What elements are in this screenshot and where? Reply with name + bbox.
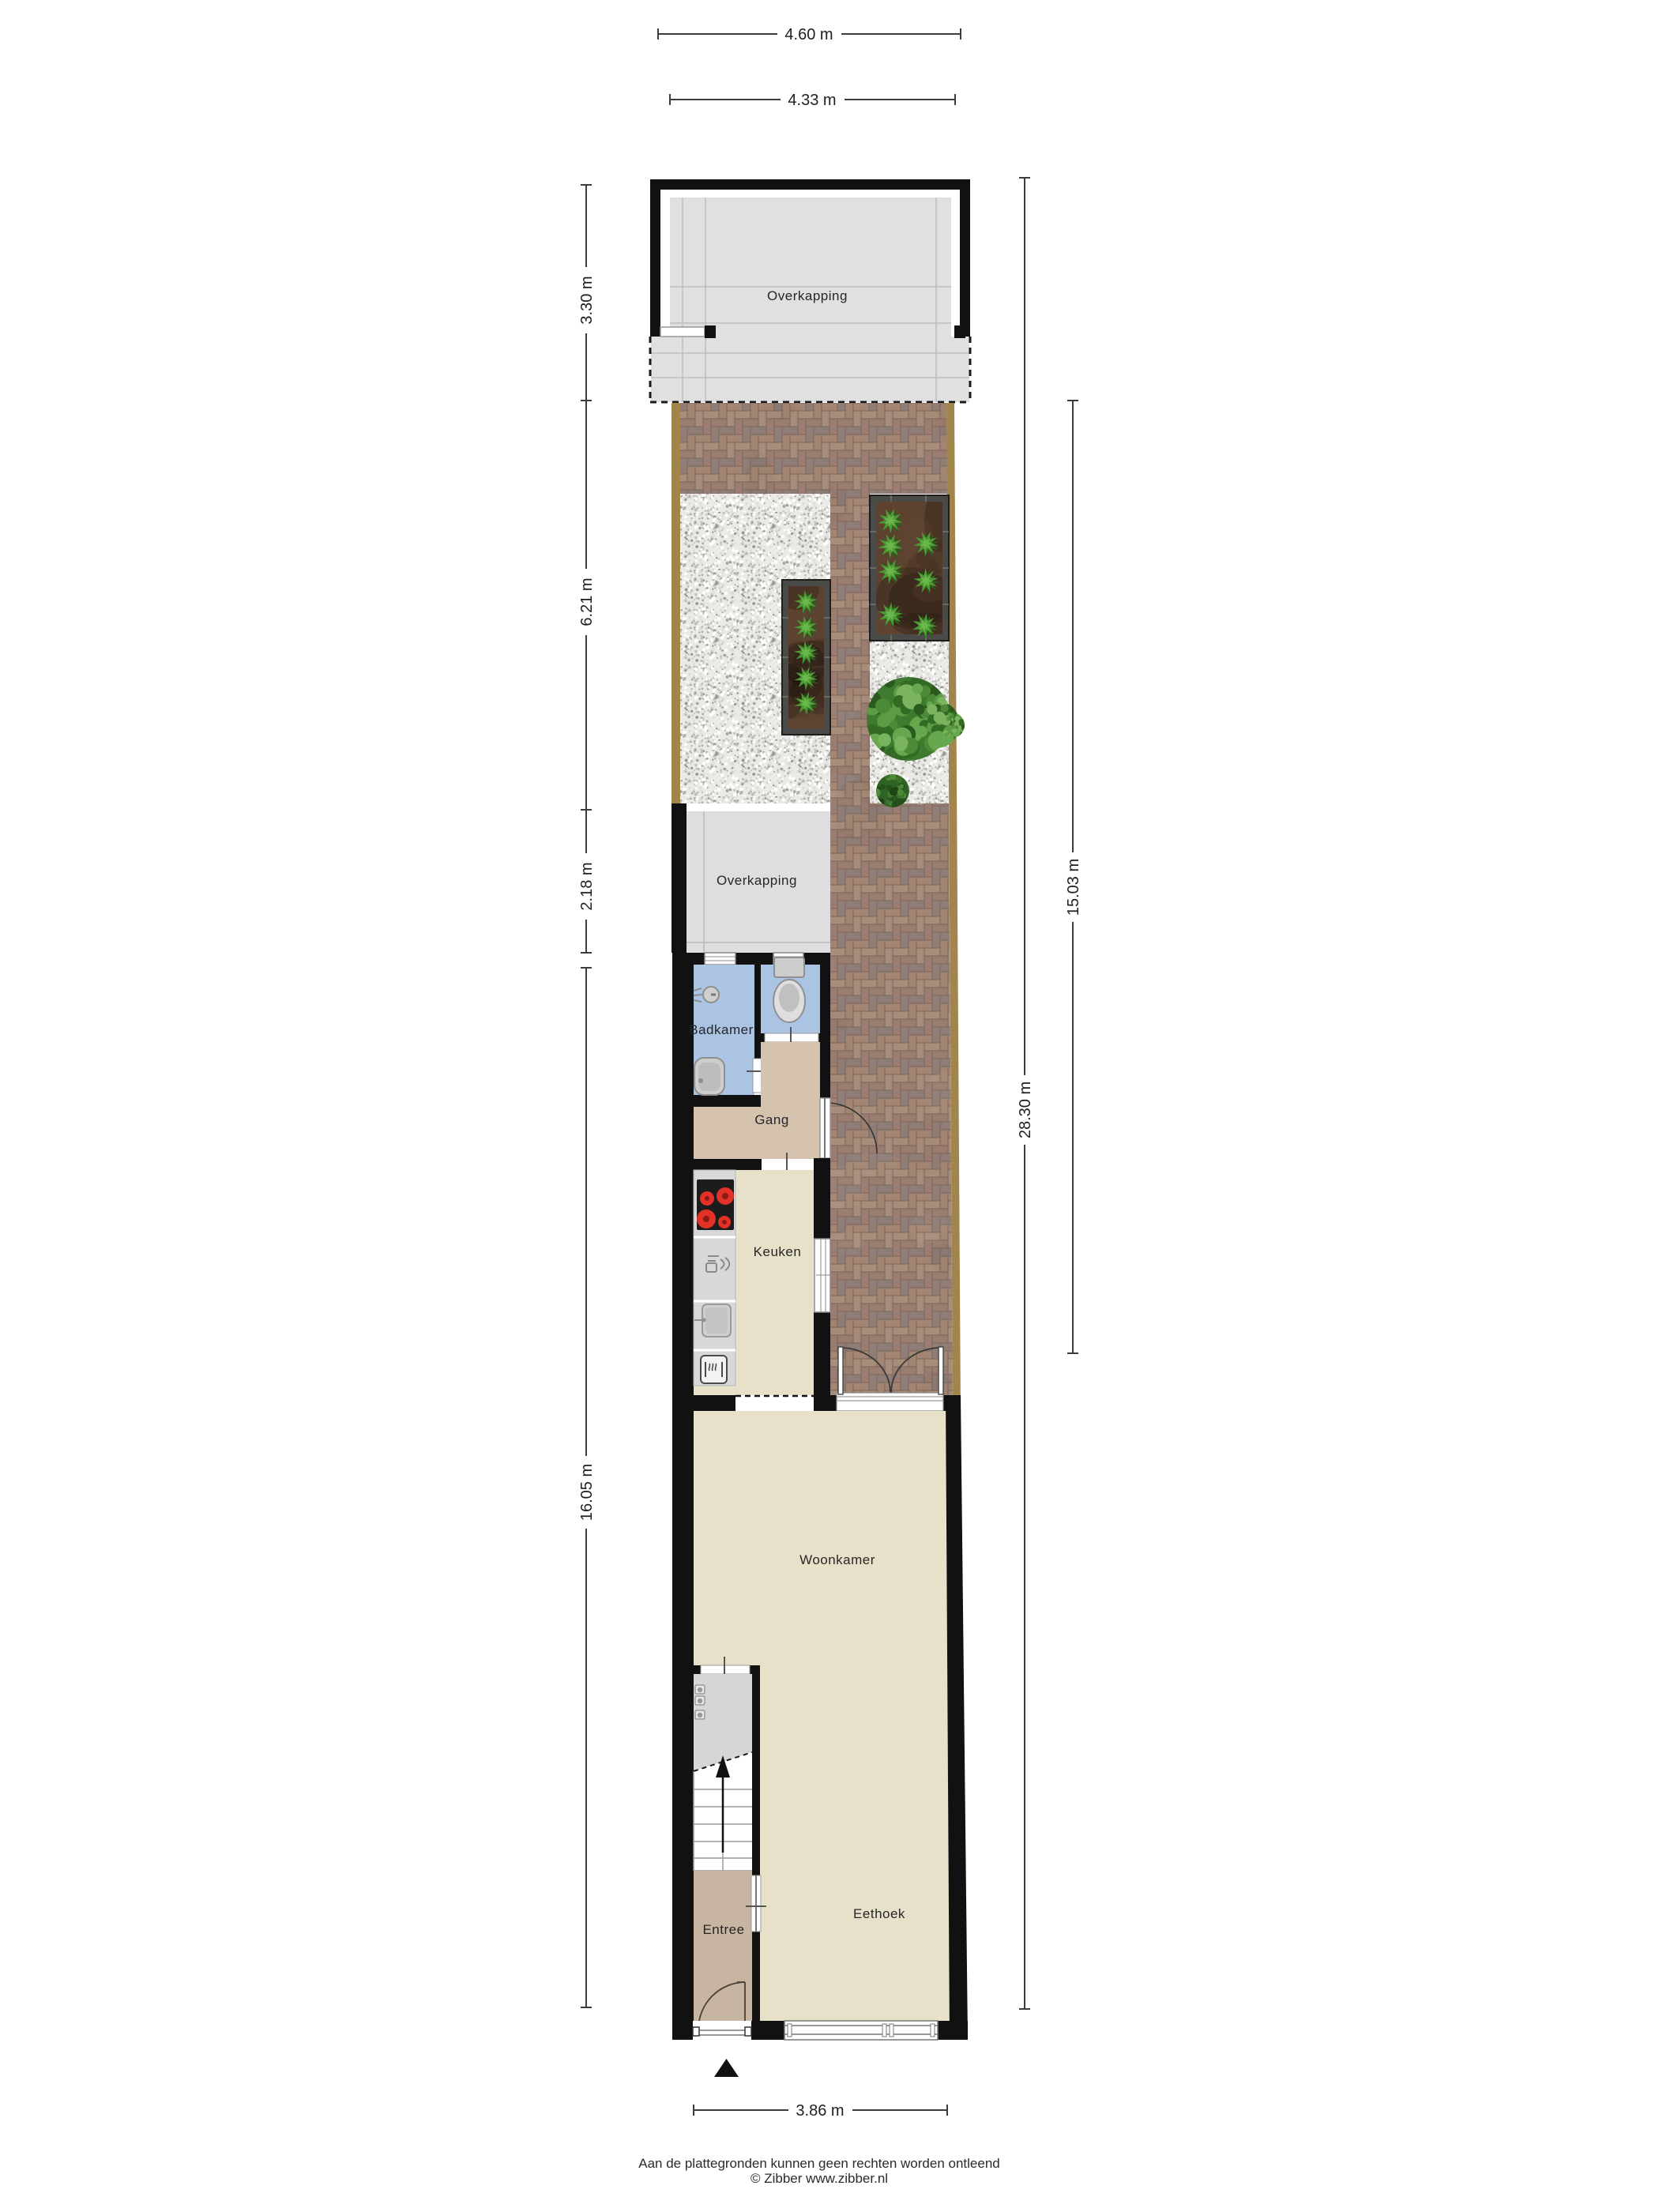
svg-text:Badkamer: Badkamer bbox=[689, 1022, 753, 1037]
svg-text:3.86 m: 3.86 m bbox=[796, 2102, 844, 2120]
svg-text:3.30 m: 3.30 m bbox=[578, 276, 596, 324]
svg-text:2.18 m: 2.18 m bbox=[578, 862, 596, 910]
svg-text:Overkapping: Overkapping bbox=[767, 288, 848, 303]
svg-text:Woonkamer: Woonkamer bbox=[799, 1552, 875, 1567]
svg-text:Gang: Gang bbox=[754, 1112, 789, 1127]
svg-text:4.33 m: 4.33 m bbox=[788, 92, 836, 109]
svg-text:15.03 m: 15.03 m bbox=[1065, 859, 1082, 916]
svg-text:16.05 m: 16.05 m bbox=[578, 1464, 596, 1521]
svg-text:6.21 m: 6.21 m bbox=[578, 577, 596, 626]
svg-text:Entree: Entree bbox=[702, 1922, 744, 1937]
svg-text:© Zibber www.zibber.nl: © Zibber www.zibber.nl bbox=[750, 2171, 888, 2186]
svg-text:Overkapping: Overkapping bbox=[717, 873, 797, 888]
svg-text:Eethoek: Eethoek bbox=[853, 1906, 905, 1921]
svg-text:4.60 m: 4.60 m bbox=[784, 26, 833, 43]
svg-text:28.30 m: 28.30 m bbox=[1017, 1082, 1034, 1138]
svg-text:Aan de plattegronden kunnen ge: Aan de plattegronden kunnen geen rechten… bbox=[638, 2156, 999, 2171]
svg-text:Keuken: Keuken bbox=[754, 1244, 802, 1259]
